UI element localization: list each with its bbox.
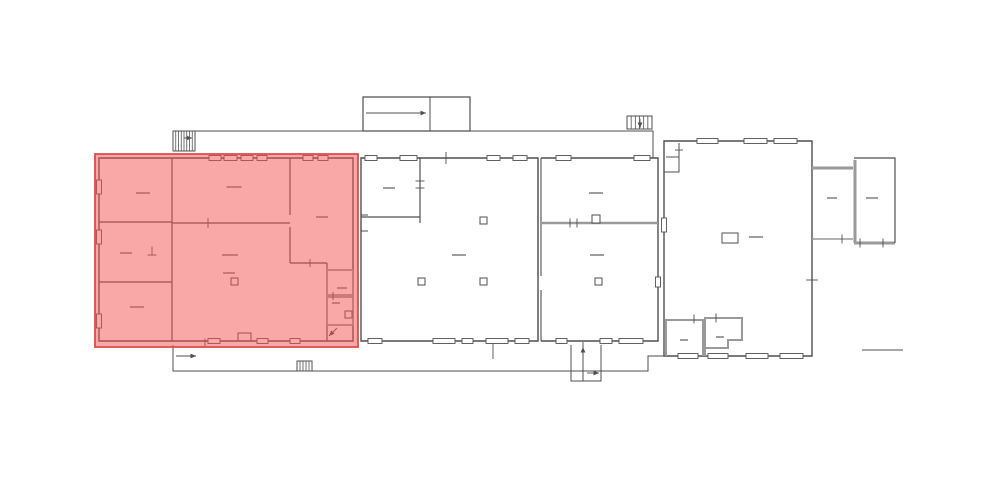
- hall-b-door-notch: [592, 215, 600, 223]
- right-wing-table: [722, 233, 738, 243]
- window-opening: [634, 156, 650, 161]
- window-opening: [556, 156, 571, 161]
- window-opening: [697, 139, 718, 144]
- window-opening: [433, 339, 455, 344]
- pillar-column: [480, 278, 487, 285]
- window-opening: [556, 339, 567, 344]
- pillar-column: [480, 217, 487, 224]
- pillar-column: [418, 278, 425, 285]
- window-opening: [368, 339, 382, 344]
- window-opening: [662, 218, 667, 232]
- window-opening: [487, 156, 500, 161]
- window-opening: [365, 156, 377, 161]
- window-opening: [746, 354, 768, 359]
- window-opening: [780, 354, 803, 359]
- window-opening: [619, 339, 643, 344]
- pillar-column: [595, 278, 602, 285]
- window-opening: [600, 339, 612, 344]
- window-opening: [678, 354, 698, 359]
- window-opening: [513, 156, 527, 161]
- window-opening: [400, 156, 417, 161]
- window-opening: [744, 139, 767, 144]
- window-opening: [656, 277, 661, 287]
- stairs-rear-left-treads: [176, 131, 193, 151]
- window-opening: [708, 354, 728, 359]
- window-opening: [486, 339, 508, 344]
- window-opening: [774, 139, 797, 144]
- window-opening: [462, 339, 473, 344]
- floor-plan-frame: [0, 0, 1000, 477]
- window-opening: [515, 339, 529, 344]
- selected-wing-overlay[interactable]: [95, 154, 358, 347]
- floor-plan-svg: [0, 0, 1000, 477]
